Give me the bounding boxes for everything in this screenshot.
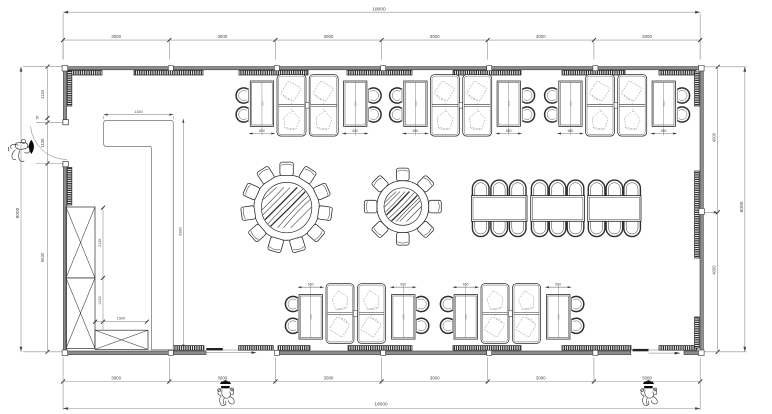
svg-text:3000: 3000 — [430, 34, 440, 39]
svg-text:1340: 1340 — [134, 110, 142, 114]
svg-text:5630: 5630 — [40, 252, 45, 262]
svg-text:1300: 1300 — [569, 100, 573, 106]
svg-text:650: 650 — [661, 129, 667, 133]
svg-text:650: 650 — [555, 283, 561, 287]
svg-text:650: 650 — [413, 129, 419, 133]
svg-text:3000: 3000 — [111, 375, 121, 380]
svg-text:8000: 8000 — [15, 207, 21, 218]
svg-text:1300: 1300 — [414, 100, 418, 106]
svg-text:650: 650 — [400, 283, 406, 287]
svg-text:3000: 3000 — [536, 34, 546, 39]
svg-text:1300: 1300 — [260, 100, 264, 106]
svg-text:3000: 3000 — [111, 34, 121, 39]
svg-text:1240: 1240 — [98, 296, 102, 304]
svg-text:1300: 1300 — [507, 100, 511, 106]
svg-text:1300: 1300 — [464, 313, 468, 319]
svg-text:1140: 1140 — [40, 89, 45, 99]
svg-text:18000: 18000 — [374, 402, 388, 408]
svg-text:2135: 2135 — [98, 239, 102, 247]
svg-text:3000: 3000 — [217, 375, 227, 380]
svg-text:95: 95 — [36, 116, 40, 120]
svg-text:650: 650 — [308, 283, 314, 287]
svg-text:1300: 1300 — [402, 313, 406, 319]
svg-text:650: 650 — [463, 283, 469, 287]
svg-text:650: 650 — [568, 129, 574, 133]
svg-text:3000: 3000 — [324, 34, 334, 39]
svg-text:3000: 3000 — [430, 375, 440, 380]
svg-text:6380: 6380 — [179, 227, 183, 235]
svg-text:4000: 4000 — [712, 265, 717, 275]
svg-text:8000: 8000 — [739, 201, 745, 212]
svg-text:18000: 18000 — [372, 6, 386, 12]
svg-text:1300: 1300 — [354, 100, 358, 106]
svg-text:3000: 3000 — [642, 375, 652, 380]
svg-text:3000: 3000 — [324, 375, 334, 380]
svg-text:1500: 1500 — [117, 317, 125, 321]
svg-text:1300: 1300 — [662, 100, 666, 106]
svg-text:1300: 1300 — [557, 313, 561, 319]
svg-text:1135: 1135 — [40, 138, 45, 148]
svg-text:3000: 3000 — [217, 34, 227, 39]
svg-text:650: 650 — [506, 129, 512, 133]
svg-text:1300: 1300 — [309, 313, 313, 319]
svg-text:650: 650 — [352, 129, 358, 133]
svg-text:4000: 4000 — [712, 132, 717, 142]
svg-text:650: 650 — [259, 129, 265, 133]
svg-text:3000: 3000 — [642, 34, 652, 39]
svg-text:3000: 3000 — [536, 375, 546, 380]
